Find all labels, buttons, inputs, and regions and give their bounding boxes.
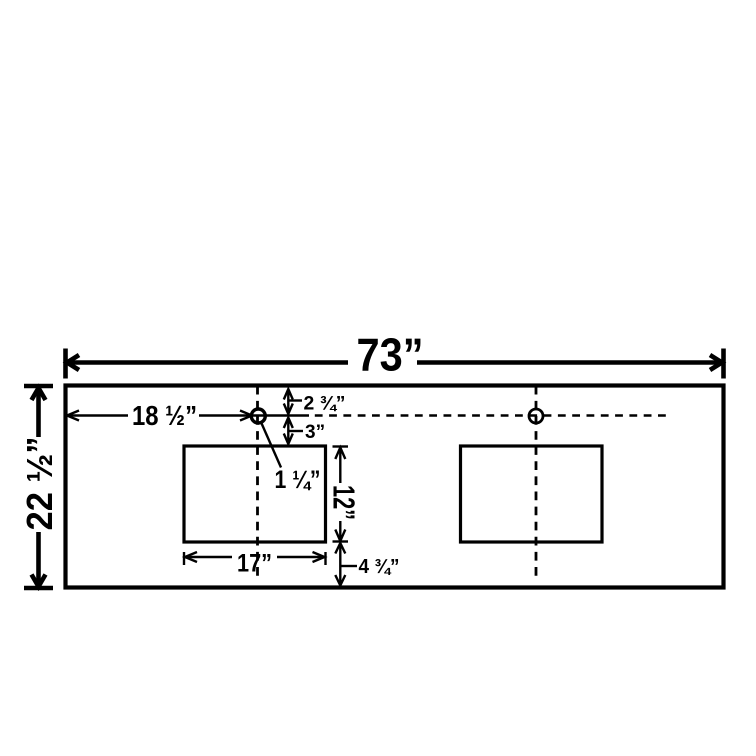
svg-text:73”: 73” [357,329,424,381]
svg-text:3”: 3” [305,422,325,443]
svg-text:18 ½”: 18 ½” [132,400,197,431]
svg-text:4 ¾”: 4 ¾” [359,556,400,578]
svg-text:1 ¼”: 1 ¼” [275,466,321,494]
svg-text:2 ¾”: 2 ¾” [304,393,346,415]
svg-text:17”: 17” [237,550,272,578]
svg-text:12”: 12” [327,485,362,520]
svg-text:22 ½”: 22 ½” [19,437,60,531]
